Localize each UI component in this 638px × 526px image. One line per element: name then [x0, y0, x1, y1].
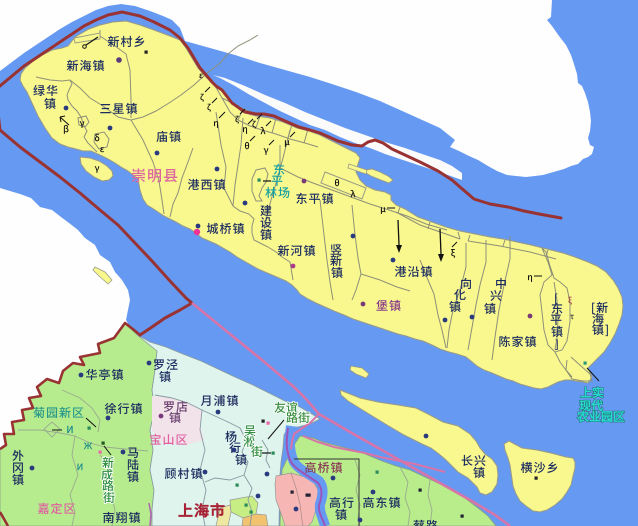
- svg-text:η: η: [213, 117, 219, 128]
- svg-text:东平镇: 东平镇: [295, 191, 334, 206]
- svg-text:农业园区: 农业园区: [576, 409, 625, 424]
- svg-text:镇: 镇: [331, 265, 343, 280]
- svg-text:嘉定区: 嘉定区: [37, 501, 76, 516]
- svg-text:γ: γ: [94, 162, 99, 173]
- svg-text:镇: 镇: [235, 452, 247, 467]
- svg-text:镇: 镇: [169, 410, 181, 425]
- svg-text:镇: 镇: [127, 469, 139, 484]
- svg-text:港沿镇: 港沿镇: [394, 264, 433, 279]
- svg-text:林场: 林场: [265, 185, 291, 200]
- svg-text:ξ: ξ: [568, 295, 572, 305]
- svg-text:θ: θ: [244, 140, 249, 151]
- svg-text:]: ]: [555, 338, 559, 351]
- svg-text:街: 街: [103, 490, 115, 505]
- svg-text:Ж: Ж: [84, 440, 93, 451]
- svg-text:镇: 镇: [484, 301, 496, 316]
- svg-text:镇: 镇: [159, 369, 171, 384]
- svg-text:高桥镇: 高桥镇: [304, 460, 343, 475]
- svg-text:镇: 镇: [551, 324, 563, 339]
- svg-text:镇: 镇: [260, 227, 272, 242]
- svg-text:γ: γ: [79, 117, 84, 128]
- svg-text:镇: 镇: [449, 299, 461, 314]
- svg-text:顾村镇: 顾村镇: [164, 466, 203, 481]
- svg-text:庙镇: 庙镇: [156, 129, 182, 144]
- svg-text:ζ: ζ: [235, 114, 239, 124]
- svg-text:新海镇: 新海镇: [66, 58, 105, 73]
- svg-text:镇: 镇: [12, 472, 24, 487]
- svg-text:θ: θ: [334, 177, 339, 188]
- svg-text:城桥镇: 城桥镇: [206, 221, 245, 236]
- svg-text:宝山区: 宝山区: [149, 432, 188, 447]
- svg-text:镇: 镇: [473, 465, 485, 480]
- svg-text:镇: 镇: [44, 96, 56, 111]
- svg-text:ζ: ζ: [200, 92, 204, 102]
- svg-text:南翔镇: 南翔镇: [102, 510, 141, 525]
- svg-text:蔡路: 蔡路: [413, 518, 439, 526]
- svg-text:镇]: 镇]: [592, 322, 610, 337]
- svg-text:华亭镇: 华亭镇: [85, 367, 124, 382]
- svg-text:λ: λ: [350, 188, 356, 199]
- svg-text:路街: 路街: [286, 410, 310, 425]
- svg-text:上海市: 上海市: [178, 502, 226, 520]
- svg-text:δ: δ: [94, 132, 99, 143]
- svg-text:新河镇: 新河镇: [277, 243, 316, 258]
- svg-text:三星镇: 三星镇: [99, 101, 138, 116]
- svg-text:μ: μ: [284, 136, 290, 147]
- svg-text:μ: μ: [380, 203, 386, 214]
- svg-text:镇: 镇: [335, 507, 347, 522]
- svg-text:崇明县: 崇明县: [131, 167, 179, 185]
- svg-text:И: И: [77, 461, 84, 472]
- svg-text:β: β: [63, 123, 69, 134]
- svg-text:η: η: [242, 123, 248, 134]
- svg-text:λ: λ: [260, 125, 266, 136]
- svg-text:陈家镇: 陈家镇: [498, 334, 537, 349]
- svg-text:И: И: [66, 424, 73, 436]
- svg-text:堡镇: 堡镇: [376, 298, 402, 313]
- svg-text:ξ: ξ: [451, 247, 456, 258]
- svg-text:ζ: ζ: [252, 119, 256, 129]
- svg-text:徐行镇: 徐行镇: [104, 401, 143, 416]
- svg-text:ε: ε: [100, 143, 105, 154]
- svg-text:新村乡: 新村乡: [107, 34, 146, 49]
- svg-text:γ: γ: [263, 144, 268, 155]
- svg-text:ε: ε: [199, 70, 203, 80]
- svg-text:τ: τ: [570, 311, 574, 321]
- svg-text:高东镇: 高东镇: [362, 495, 401, 510]
- svg-text:月浦镇: 月浦镇: [200, 393, 239, 408]
- svg-text:横沙乡: 横沙乡: [520, 460, 559, 475]
- svg-text:菊园新区: 菊园新区: [33, 405, 85, 420]
- svg-text:街: 街: [251, 444, 263, 459]
- svg-text:η: η: [527, 271, 533, 282]
- svg-text:ζ: ζ: [207, 102, 211, 112]
- svg-text:港西镇: 港西镇: [187, 177, 226, 192]
